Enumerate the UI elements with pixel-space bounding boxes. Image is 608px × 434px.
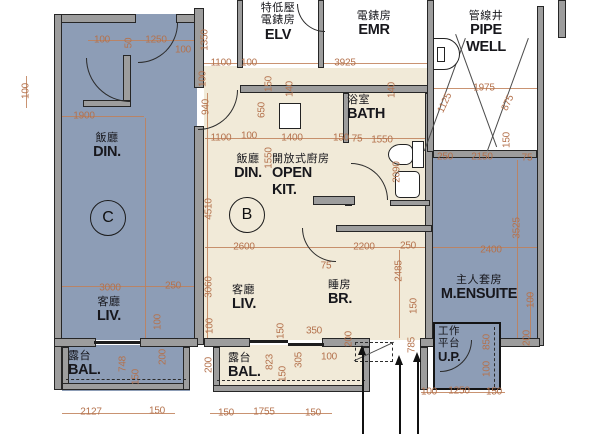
dimension-label: 140 xyxy=(285,81,296,97)
dimension-label: 2090 xyxy=(392,161,403,182)
dimension-label: 1755 xyxy=(253,407,274,418)
dimension-label: 75 xyxy=(352,134,363,145)
dimensions-layer: 1005012501001001900135011001003925100940… xyxy=(0,0,608,434)
dimension-label: 100 xyxy=(241,131,257,142)
dimension-label: 100 xyxy=(321,352,337,363)
dimension-label: 1550 xyxy=(264,147,275,168)
dimension-label: 785 xyxy=(407,337,418,353)
dimension-label: 150 xyxy=(264,76,275,92)
dimension-label: 940 xyxy=(201,99,212,115)
dimension-label: 100 xyxy=(421,387,437,398)
dimension-label: 150 xyxy=(486,387,502,398)
dimension-label: 140 xyxy=(387,82,398,98)
dimension-label: 3525 xyxy=(512,217,523,238)
dimension-label: 100 xyxy=(94,35,110,46)
dimension-label: 100 xyxy=(482,361,493,377)
dimension-label: 150 xyxy=(149,406,165,417)
dimension-label: 100 xyxy=(21,83,32,99)
dimension-label: 1100 xyxy=(211,58,232,69)
dimension-label: 650 xyxy=(257,102,268,118)
dimension-label: 75 xyxy=(522,153,533,164)
dimension-label: 3925 xyxy=(334,58,355,69)
dimension-label: 150 xyxy=(333,133,349,144)
dimension-label: 1550 xyxy=(371,135,392,146)
dimension-label: 100 xyxy=(526,292,537,308)
dimension-label: 250 xyxy=(165,281,181,292)
dimension-label: 150 xyxy=(131,369,142,385)
dimension-label: 1350 xyxy=(200,29,211,50)
dimension-label: 250 xyxy=(437,152,453,163)
dimension-label: 1975 xyxy=(473,83,494,94)
dimension-label: 150 xyxy=(409,298,420,314)
dimension-label: 100 xyxy=(175,45,191,56)
dimension-label: 200 xyxy=(204,357,215,373)
dimension-label: 75 xyxy=(321,261,332,272)
dimension-label: 4510 xyxy=(204,198,215,219)
dimension-label: 150 xyxy=(305,408,321,419)
dimension-label: 100 xyxy=(198,71,209,87)
dimension-label: 50 xyxy=(124,38,135,49)
dimension-label: 2150 xyxy=(471,152,492,163)
dimension-label: 1250 xyxy=(145,35,166,46)
dimension-label: 350 xyxy=(306,326,322,337)
dimension-label: 100 xyxy=(205,318,216,334)
dimension-label: 100 xyxy=(153,314,164,330)
dimension-label: 1400 xyxy=(281,133,302,144)
dimension-label: 200 xyxy=(344,331,355,347)
dimension-label: 2485 xyxy=(394,260,405,281)
dimension-label: 250 xyxy=(400,241,416,252)
dimension-label: 150 xyxy=(218,408,234,419)
dimension-label: 3060 xyxy=(204,276,215,297)
dimension-label: 100 xyxy=(241,58,257,69)
dimension-label: 150 xyxy=(276,323,287,339)
dimension-label: 1250 xyxy=(448,386,469,397)
dimension-label: 875 xyxy=(500,93,517,112)
dimension-label: 823 xyxy=(265,354,276,370)
dimension-label: 2600 xyxy=(233,242,254,253)
dimension-label: 748 xyxy=(118,356,129,372)
dimension-label: 2127 xyxy=(80,407,101,418)
dimension-label: 200 xyxy=(158,349,169,365)
dimension-label: 150 xyxy=(502,132,513,148)
dimension-label: 1100 xyxy=(211,133,232,144)
dimension-label: 2200 xyxy=(353,242,374,253)
floor-plan: 特低壓 電錶房 ELV 電錶房 EMR 管線井 PIPE WELL 飯廳 DIN… xyxy=(0,0,608,434)
dimension-label: 200 xyxy=(522,330,533,346)
dimension-label: 1125 xyxy=(436,91,455,114)
dimension-label: 1900 xyxy=(73,111,94,122)
dimension-label: 2400 xyxy=(480,245,501,256)
dimension-label: 850 xyxy=(482,334,493,350)
dimension-label: 3000 xyxy=(99,283,120,294)
dimension-label: 305 xyxy=(294,352,305,368)
dimension-label: 150 xyxy=(278,366,289,382)
